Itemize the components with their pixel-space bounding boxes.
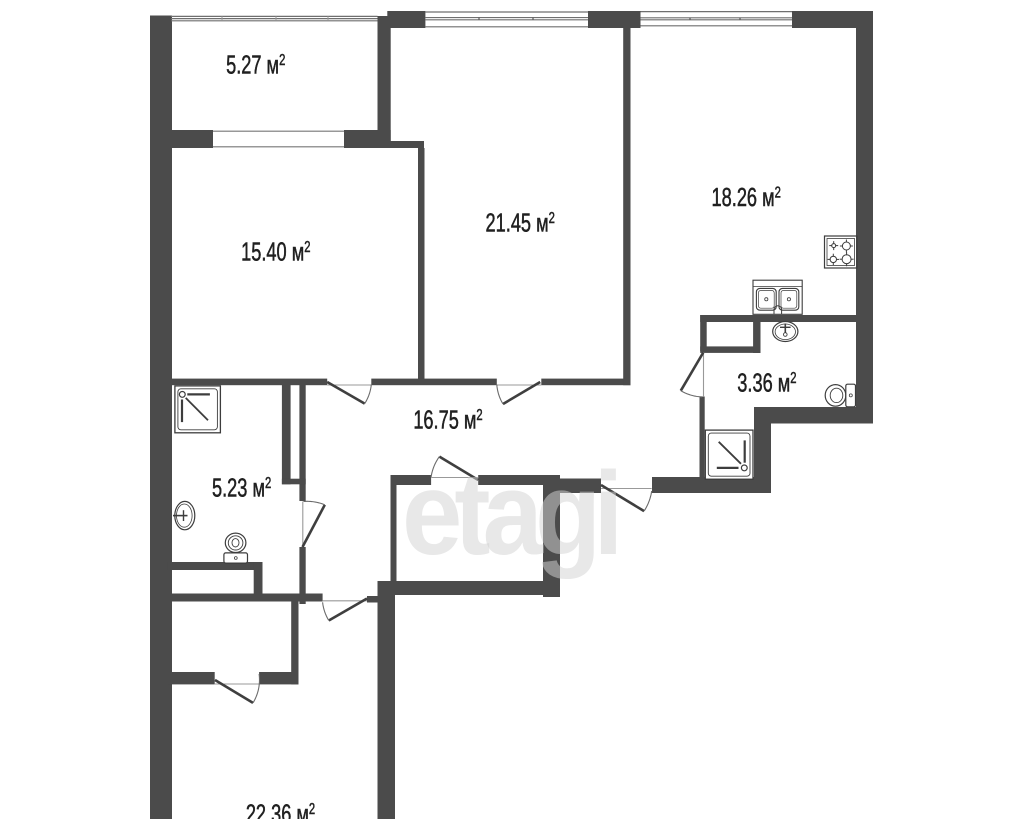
svg-text:5.23 м2: 5.23 м2 bbox=[212, 473, 271, 502]
svg-text:5.27 м2: 5.27 м2 bbox=[226, 50, 285, 79]
svg-text:22.36 м2: 22.36 м2 bbox=[246, 799, 316, 819]
svg-text:3.36 м2: 3.36 м2 bbox=[737, 368, 796, 397]
svg-text:16.75 м2: 16.75 м2 bbox=[413, 405, 483, 434]
svg-text:15.40 м2: 15.40 м2 bbox=[241, 237, 311, 266]
svg-text:21.45 м2: 21.45 м2 bbox=[486, 208, 556, 237]
svg-text:etagi: etagi bbox=[402, 448, 616, 580]
svg-text:18.26 м2: 18.26 м2 bbox=[712, 182, 782, 211]
